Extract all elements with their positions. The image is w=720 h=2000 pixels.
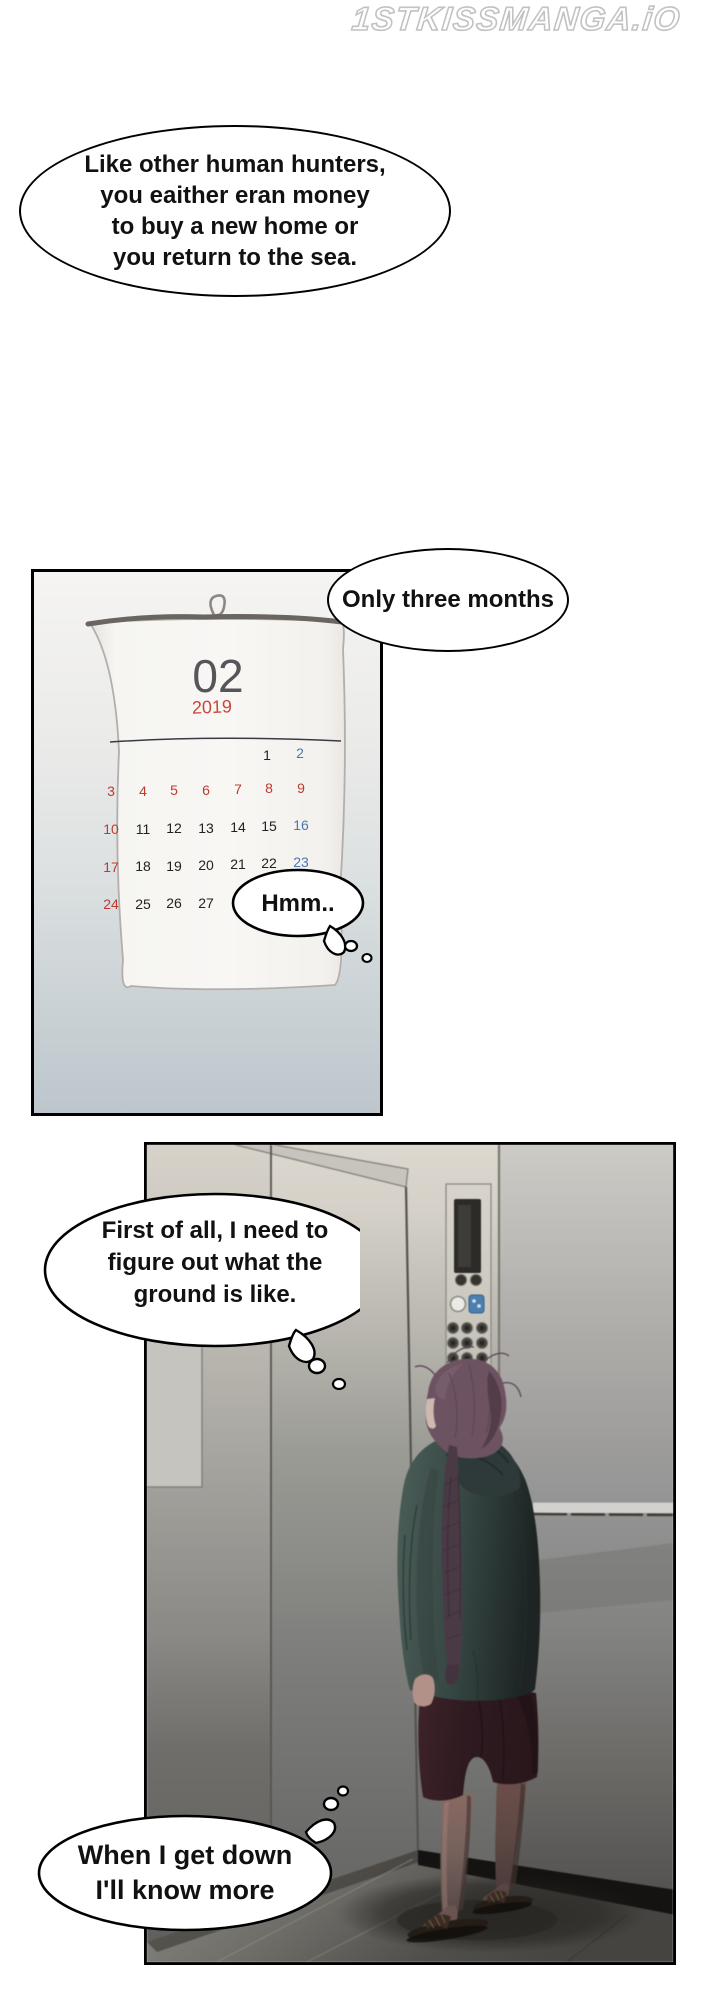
svg-text:1: 1 xyxy=(263,747,271,763)
svg-text:5: 5 xyxy=(170,782,178,798)
svg-text:14: 14 xyxy=(230,819,246,835)
svg-text:24: 24 xyxy=(103,896,119,912)
svg-text:12: 12 xyxy=(166,820,182,836)
svg-text:7: 7 xyxy=(234,781,242,797)
svg-text:2019: 2019 xyxy=(192,696,233,717)
svg-text:26: 26 xyxy=(166,895,182,911)
svg-text:ground is like.: ground is like. xyxy=(134,1281,297,1308)
svg-text:27: 27 xyxy=(198,895,214,911)
svg-text:02: 02 xyxy=(192,650,243,702)
svg-text:figure out what the: figure out what the xyxy=(108,1249,323,1276)
svg-text:4: 4 xyxy=(139,783,147,799)
svg-text:16: 16 xyxy=(293,817,309,833)
svg-text:6: 6 xyxy=(202,782,210,798)
svg-text:20: 20 xyxy=(198,857,214,873)
svg-text:11: 11 xyxy=(136,821,151,837)
svg-text:First of all, I need to: First of all, I need to xyxy=(102,1217,329,1244)
svg-text:I'll know more: I'll know more xyxy=(96,1875,275,1905)
svg-text:9: 9 xyxy=(297,780,305,796)
svg-text:13: 13 xyxy=(198,820,214,836)
svg-text:19: 19 xyxy=(166,858,182,874)
svg-text:8: 8 xyxy=(265,780,273,796)
svg-text:25: 25 xyxy=(135,896,151,912)
svg-text:2: 2 xyxy=(296,745,304,761)
svg-text:10: 10 xyxy=(103,821,119,837)
svg-text:3: 3 xyxy=(107,783,115,799)
svg-text:15: 15 xyxy=(261,818,277,834)
svg-text:18: 18 xyxy=(135,858,151,874)
svg-text:Hmm..: Hmm.. xyxy=(261,890,334,917)
svg-text:When I get down: When I get down xyxy=(78,1840,292,1870)
svg-text:17: 17 xyxy=(103,859,119,875)
